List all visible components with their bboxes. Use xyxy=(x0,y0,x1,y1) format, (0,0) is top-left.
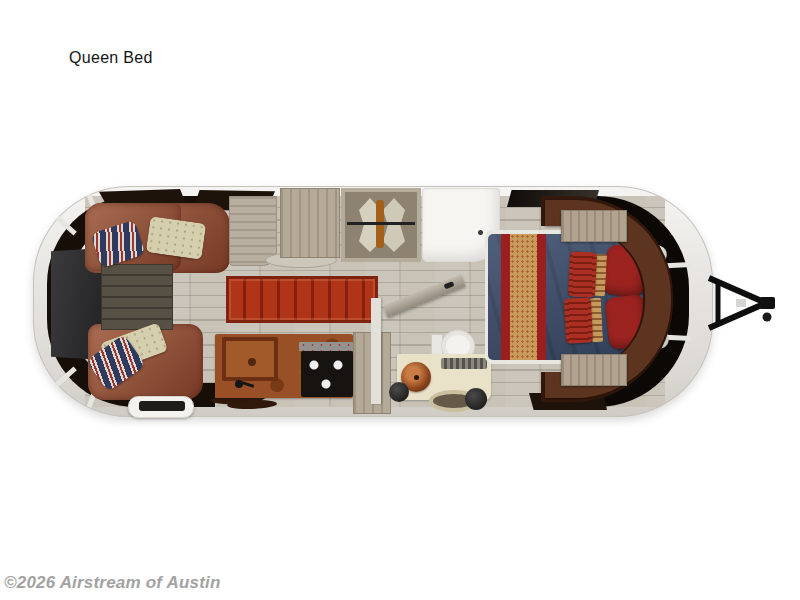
bed-runner-red-edge xyxy=(501,234,510,360)
coffee-table xyxy=(101,264,173,330)
sink-drain xyxy=(248,358,256,366)
floor-mat xyxy=(227,399,277,410)
page: { "page": { "background": "#ffffff" }, "… xyxy=(0,0,800,600)
floorplan-title: Queen Bed xyxy=(69,49,153,67)
wardrobe-cabinet xyxy=(280,188,340,258)
runner-rug xyxy=(226,276,378,323)
shower-drain xyxy=(478,230,483,235)
hanging-closet xyxy=(341,188,421,262)
bed-runner-tan xyxy=(510,234,537,360)
stove-knob-panel xyxy=(299,342,353,351)
jack-wheel xyxy=(763,313,772,322)
nightstand-top xyxy=(561,210,627,242)
entry-step xyxy=(128,396,194,418)
entry-door-mat xyxy=(139,401,185,411)
cooktop xyxy=(301,351,353,397)
trailer-interior xyxy=(33,186,713,417)
kitchen-sink xyxy=(222,337,278,381)
dealer-watermark: ©2026 Airstream of Austin xyxy=(4,573,221,593)
vanity-grate xyxy=(441,358,487,369)
hanging-garment xyxy=(383,198,405,252)
tow-hitch xyxy=(706,272,778,334)
fixture-left xyxy=(389,382,409,402)
hitch-jack xyxy=(736,299,746,307)
cream-pillow-top xyxy=(146,216,206,259)
bathroom-wall xyxy=(371,298,381,404)
copper-sink-drain xyxy=(414,375,419,380)
nightstand-bottom xyxy=(561,354,627,386)
door-handle xyxy=(443,281,454,289)
hitch-coupler xyxy=(760,297,775,309)
closet-rod xyxy=(347,222,415,225)
trailer-floorplan xyxy=(33,186,713,417)
fixture-right xyxy=(465,388,487,410)
